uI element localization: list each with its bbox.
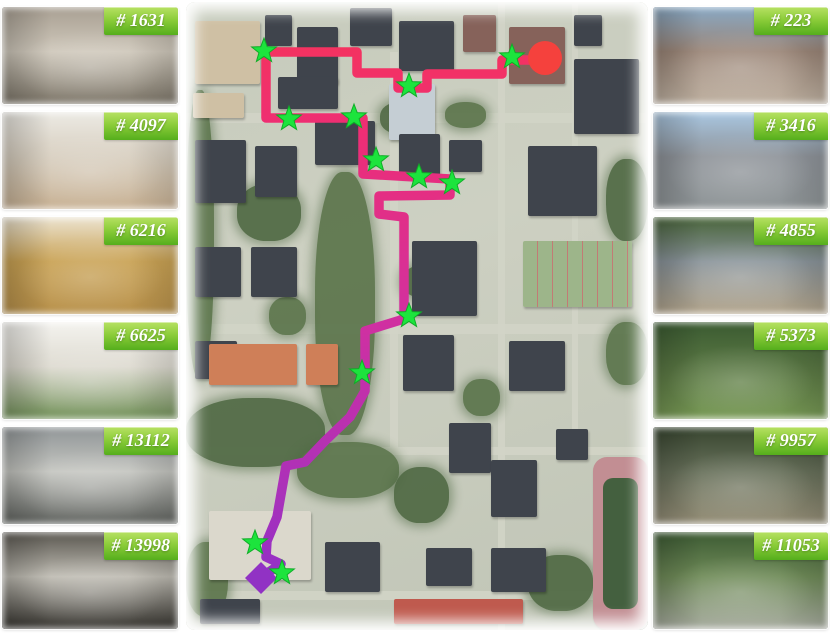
camera-frame: # 3416 xyxy=(653,112,828,209)
camera-frame: # 5373 xyxy=(653,322,828,419)
camera-frame: # 4855 xyxy=(653,217,828,314)
frame-id-badge: # 6216 xyxy=(104,217,178,245)
figure-canvas: { "figure": { "background": "#ffffff", "… xyxy=(0,0,830,637)
frame-id-badge: # 11053 xyxy=(754,532,828,560)
frame-id-badge: # 3416 xyxy=(754,112,828,140)
frame-id-badge: # 6625 xyxy=(104,322,178,350)
frame-id-badge: # 4097 xyxy=(104,112,178,140)
keyframe-star-marker xyxy=(277,106,302,130)
camera-frame: # 9957 xyxy=(653,427,828,524)
trajectory-overlay xyxy=(186,2,648,630)
frame-id-badge: # 5373 xyxy=(754,322,828,350)
frame-id-badge: # 4855 xyxy=(754,217,828,245)
satellite-map xyxy=(186,2,648,630)
frame-id-badge: # 13112 xyxy=(104,427,178,455)
frame-id-badge: # 13998 xyxy=(104,532,179,560)
camera-frame: # 4097 xyxy=(2,112,178,209)
frame-id-badge: # 1631 xyxy=(104,7,178,35)
frame-id-badge: # 9957 xyxy=(754,427,828,455)
camera-frame: # 6216 xyxy=(2,217,178,314)
frame-id-badge: # 223 xyxy=(754,7,828,35)
camera-frame: # 1631 xyxy=(2,7,178,104)
keyframe-star-marker xyxy=(407,164,432,188)
outdoor-frames-column: # 223# 3416# 4855# 5373# 9957# 11053 xyxy=(653,7,828,637)
camera-frame: # 13112 xyxy=(2,427,178,524)
camera-frame: # 13998 xyxy=(2,532,178,629)
indoor-frames-column: # 1631# 4097# 6216# 6625# 13112# 13998 xyxy=(2,7,178,637)
camera-frame: # 223 xyxy=(653,7,828,104)
route-start-marker xyxy=(528,41,562,75)
camera-frame: # 11053 xyxy=(653,532,828,629)
camera-frame: # 6625 xyxy=(2,322,178,419)
